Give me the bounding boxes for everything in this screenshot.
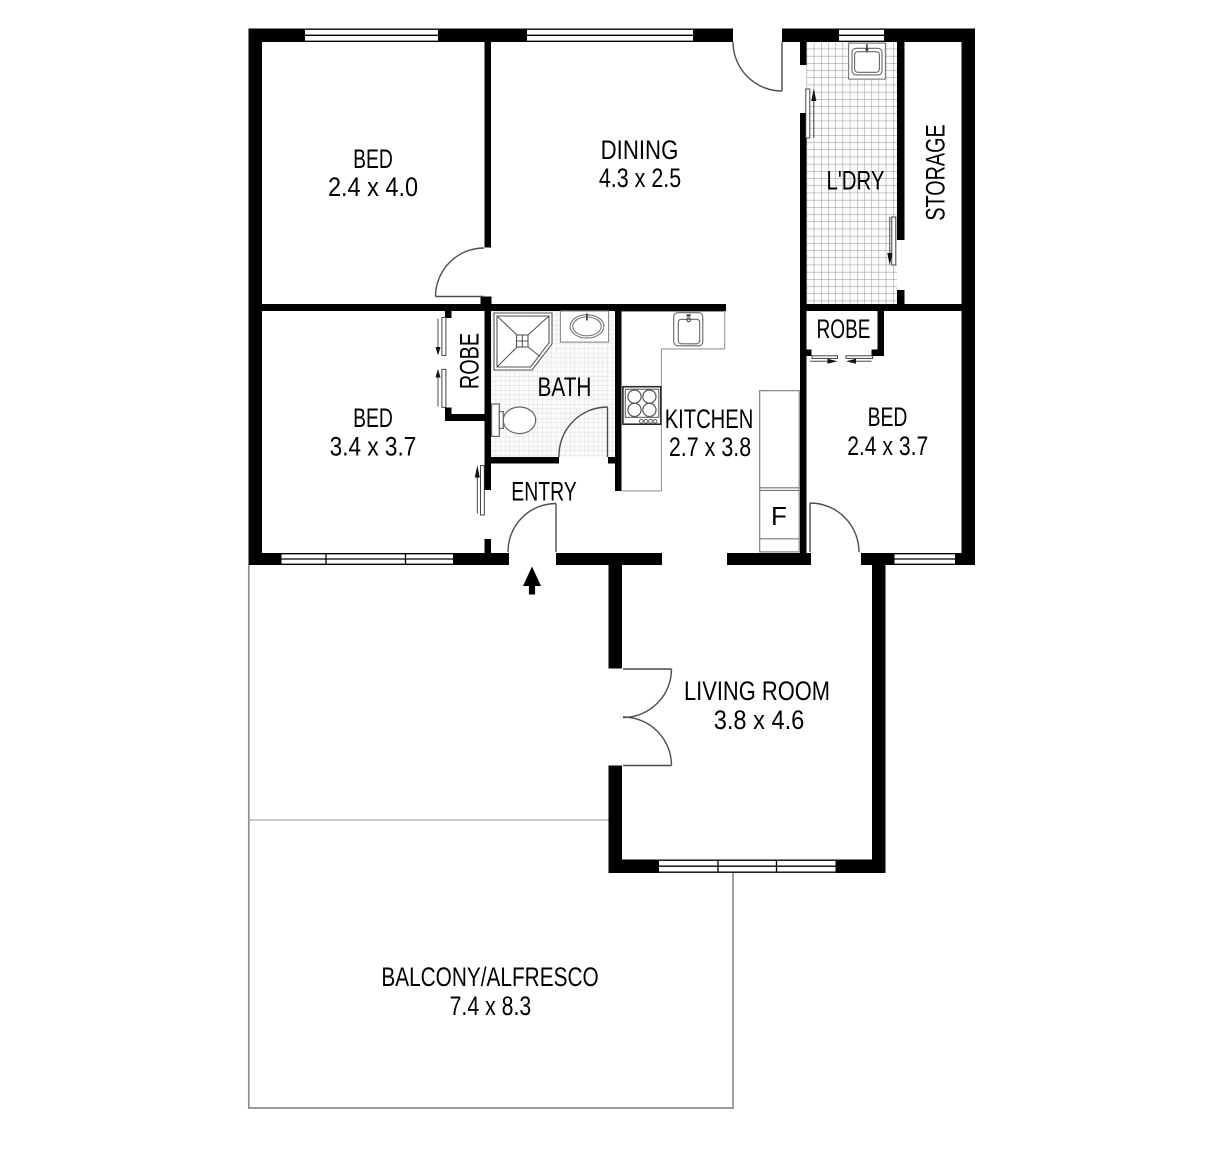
svg-text:2.7 x 3.8: 2.7 x 3.8	[669, 432, 751, 462]
svg-text:BED: BED	[353, 403, 393, 433]
svg-text:BED: BED	[353, 144, 393, 174]
svg-text:BATH: BATH	[538, 372, 592, 402]
svg-text:7.4 x 8.3: 7.4 x 8.3	[450, 991, 532, 1021]
svg-text:2.4 x 4.0: 2.4 x 4.0	[328, 172, 418, 202]
svg-text:F: F	[771, 501, 787, 531]
svg-text:STORAGE: STORAGE	[921, 124, 951, 220]
svg-text:L'DRY: L'DRY	[827, 166, 885, 196]
svg-text:4.3 x 2.5: 4.3 x 2.5	[599, 163, 681, 193]
svg-text:DINING: DINING	[601, 135, 679, 165]
svg-text:LIVING ROOM: LIVING ROOM	[684, 676, 830, 706]
svg-text:KITCHEN: KITCHEN	[665, 404, 754, 434]
svg-text:BED: BED	[868, 402, 908, 432]
svg-text:ROBE: ROBE	[454, 333, 484, 389]
svg-text:ROBE: ROBE	[817, 314, 871, 344]
svg-text:2.4 x 3.7: 2.4 x 3.7	[847, 431, 928, 461]
svg-text:BALCONY/ALFRESCO: BALCONY/ALFRESCO	[381, 962, 598, 992]
svg-text:3.4 x 3.7: 3.4 x 3.7	[330, 431, 417, 461]
svg-text:ENTRY: ENTRY	[511, 476, 577, 506]
svg-text:3.8 x 4.6: 3.8 x 4.6	[714, 705, 805, 735]
